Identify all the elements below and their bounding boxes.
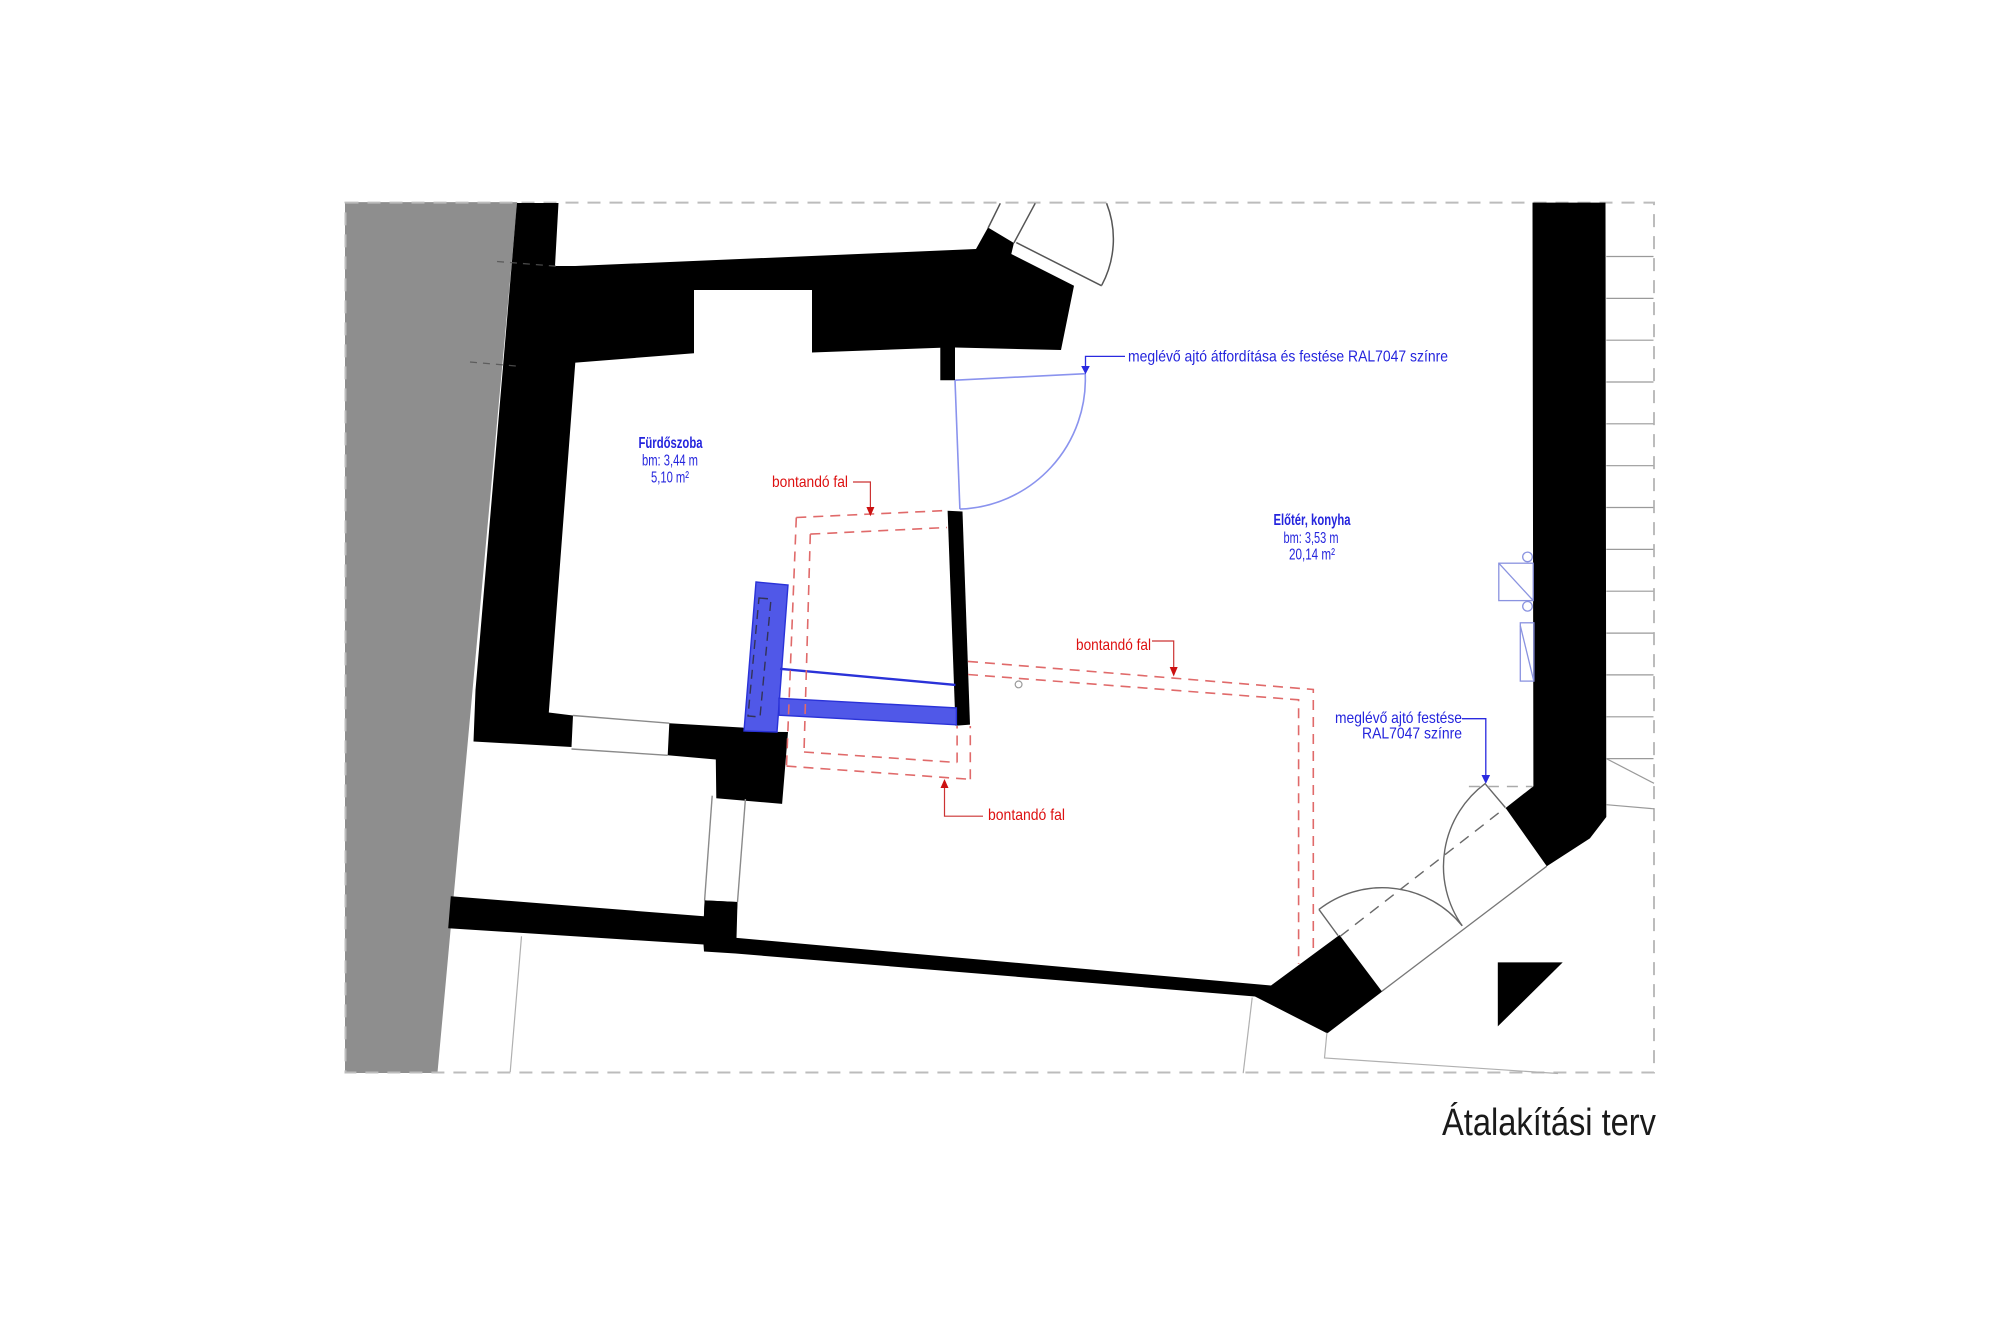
- svg-text:bontandó fal: bontandó fal: [772, 474, 848, 491]
- svg-text:meglévő ajtó átfordítása és fe: meglévő ajtó átfordítása és festése RAL7…: [1128, 349, 1448, 366]
- svg-text:meglévő ajtó festése: meglévő ajtó festése: [1335, 710, 1462, 727]
- svg-text:Fürdőszoba: Fürdőszoba: [639, 435, 703, 452]
- svg-text:5,10 m²: 5,10 m²: [651, 470, 689, 487]
- svg-text:RAL7047 színre: RAL7047 színre: [1362, 726, 1462, 743]
- svg-text:Előtér, konyha: Előtér, konyha: [1274, 512, 1351, 529]
- svg-text:bontandó fal: bontandó fal: [1076, 637, 1151, 654]
- svg-text:20,14 m²: 20,14 m²: [1289, 547, 1335, 564]
- svg-text:bontandó fal: bontandó fal: [988, 807, 1065, 824]
- svg-text:bm: 3,53 m: bm: 3,53 m: [1284, 530, 1339, 547]
- svg-text:Átalakítási terv: Átalakítási terv: [1442, 1101, 1656, 1144]
- svg-text:bm: 3,44 m: bm: 3,44 m: [642, 452, 698, 469]
